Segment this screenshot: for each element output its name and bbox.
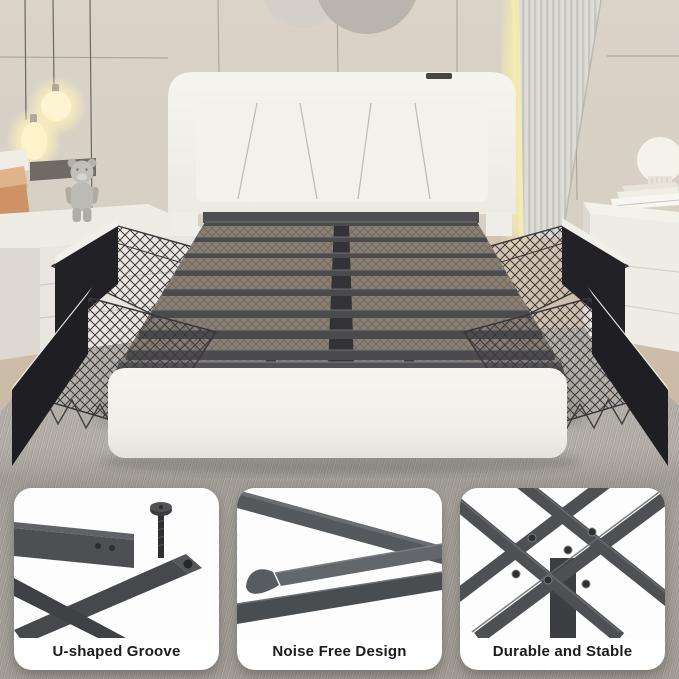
- footboard: [108, 368, 567, 458]
- headboard-leg-left: [172, 212, 198, 236]
- usb-charging-port: [426, 73, 452, 79]
- feature-card-durable-and-stable: Durable and Stable: [460, 488, 665, 670]
- noise-free-design-detail: [237, 488, 442, 638]
- feature-card-u-shaped-groove: U-shaped Groove: [14, 488, 219, 670]
- headboard-crossbar: [203, 212, 479, 223]
- durable-and-stable-image: [460, 488, 665, 638]
- product-image: U-shaped Groove Noise Free Design: [0, 0, 679, 679]
- feature-callouts: U-shaped Groove Noise Free Design: [0, 488, 679, 670]
- bedroom-scene: [0, 0, 679, 485]
- wall-circle-decor: [263, 0, 419, 34]
- noise-free-design-image: [237, 488, 442, 638]
- u-shaped-groove-image: [14, 488, 219, 638]
- book-stack: [611, 182, 679, 210]
- feature-caption: U-shaped Groove: [14, 638, 219, 670]
- feature-caption: Durable and Stable: [460, 638, 665, 670]
- feature-caption: Noise Free Design: [237, 638, 442, 670]
- u-shaped-groove-detail: [14, 488, 219, 638]
- headboard-leg-right: [486, 212, 512, 236]
- feature-card-noise-free-design: Noise Free Design: [237, 488, 442, 670]
- headboard-cushion: [196, 100, 488, 202]
- durable-and-stable-detail: [460, 488, 665, 638]
